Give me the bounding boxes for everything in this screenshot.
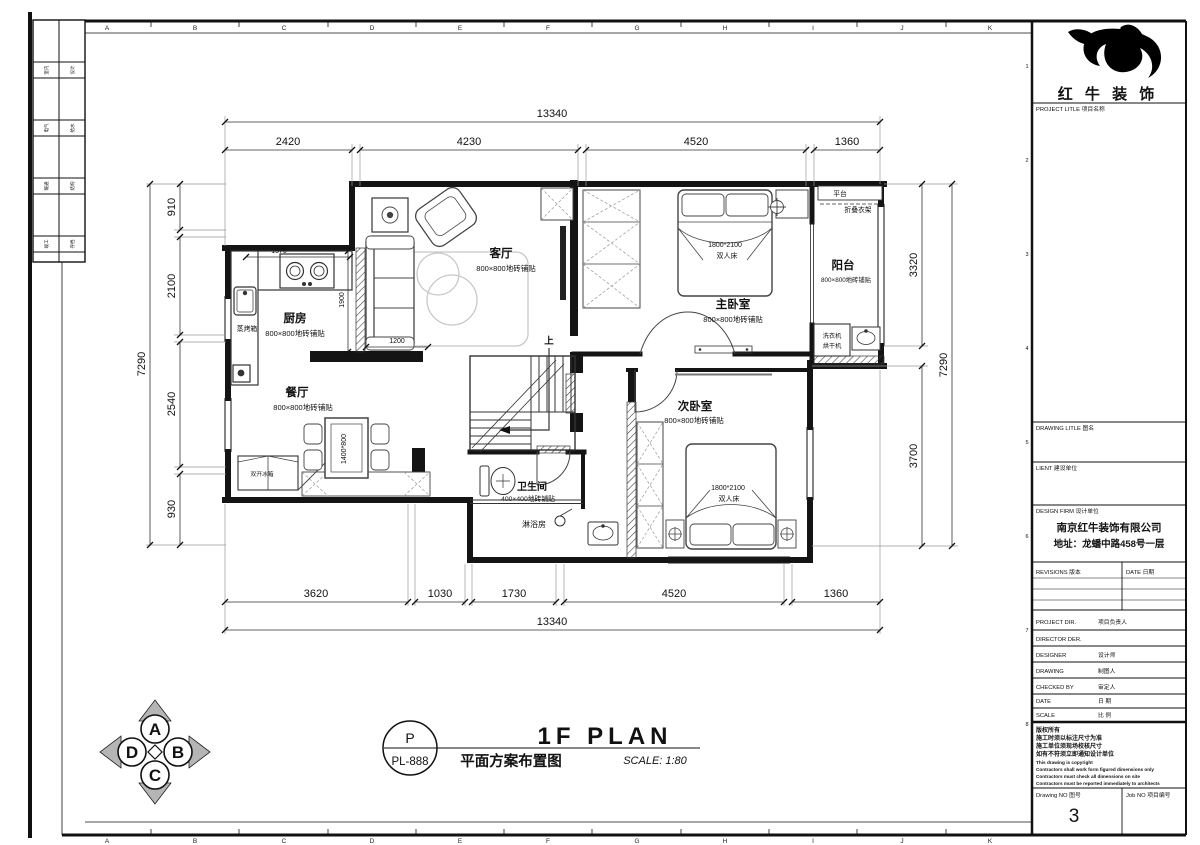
armchair	[412, 184, 480, 250]
grid-number: 2	[1025, 158, 1028, 164]
grid-number: 6	[1025, 534, 1028, 540]
row-label: CHECKED BY	[1036, 685, 1074, 691]
strip-cell: 电气	[43, 123, 49, 132]
platform-shelf	[818, 186, 882, 200]
row-label: DRAWING	[1036, 669, 1064, 675]
strip-cell: 暖通	[43, 181, 50, 190]
dryer-label: 烘干机	[823, 342, 842, 350]
drawing-no-label: Drawing NO 图号	[1036, 791, 1081, 799]
dim-left-3: 2540	[166, 392, 178, 416]
drawing-title-label: DRAWING LITLE 图名	[1036, 424, 1094, 432]
dim-sofa: 1200	[389, 338, 405, 345]
row-label: DESIGNER	[1036, 653, 1066, 659]
row-label: DIRECTOR DER.	[1036, 637, 1082, 643]
revisions-label: REVISIONS 版本	[1036, 568, 1081, 576]
room-dining-note: 800×800地砖铺贴	[273, 402, 333, 412]
room-balcony-note: 800×800地砖铺贴	[821, 275, 872, 284]
shower-label: 淋浴房	[522, 519, 546, 529]
row-label: 审定人	[1098, 683, 1116, 691]
dim-top-total: 13340	[537, 108, 568, 120]
strip-cell: 设计	[69, 65, 76, 74]
row-label: DATE	[1036, 699, 1051, 705]
strip-cell: 给水	[69, 123, 76, 132]
strip-cell: 室内	[43, 65, 50, 74]
grid-numbers-right: 1 2 3 4 5 6 7 8	[1025, 64, 1028, 728]
dim-top-1: 2420	[276, 136, 300, 148]
grid-letter: E	[458, 838, 463, 845]
sheet-frame	[28, 12, 1186, 838]
stairs	[470, 348, 575, 452]
grid-number: 3	[1025, 252, 1028, 258]
dim-bottom-1: 3620	[304, 588, 328, 600]
grid-letter: G	[634, 838, 639, 845]
tv	[560, 226, 566, 300]
design-firm-label: DESIGN FIRM 设计单位	[1036, 507, 1099, 515]
dim-right-total: 7290	[938, 353, 950, 377]
grid-letter: C	[282, 838, 287, 845]
strip-cell: 竣工	[43, 239, 50, 248]
copyright-line: 版权所有	[1035, 726, 1060, 734]
wardrobe-second	[637, 422, 663, 548]
grid-letter: I	[812, 25, 814, 32]
copyright-line: Contractors must check all dimensions on…	[1036, 774, 1140, 779]
copyright-line: Contractors shall work form figured dime…	[1036, 767, 1154, 772]
grid-letter: E	[458, 25, 463, 32]
title-block-rows: PROJECT DIR. 项目负责人 DIRECTOR DER. DESIGNE…	[1036, 618, 1127, 719]
row-label: PROJECT DIR.	[1036, 620, 1077, 626]
stairs-up-label: 上	[544, 335, 554, 347]
room-living: 客厅	[489, 246, 513, 260]
grid-letter: C	[282, 25, 287, 32]
dim-counter: 1570	[271, 248, 287, 255]
second-bed-size: 1800*2100	[711, 485, 745, 492]
grid-letters-top: A B C D E F G H I J K	[105, 25, 993, 32]
sofa	[366, 236, 414, 350]
row-label: 设计师	[1098, 651, 1116, 659]
second-bedroom-door	[635, 370, 677, 412]
grid-number: 1	[1025, 64, 1028, 70]
grid-letters-bottom: A B C D E F G H I J K	[105, 838, 993, 845]
drawing-titlebar: P PL-888 1F PLAN 平面方案布置图 SCALE: 1:80	[383, 721, 700, 775]
floor-plan: 上	[136, 108, 958, 634]
dim-left-2: 2100	[166, 274, 178, 298]
bathroom-door	[537, 452, 570, 485]
room-kitchen-note: 800×800地砖铺贴	[265, 328, 325, 338]
copyright-line: 施工时须以标注尺寸为准	[1036, 734, 1102, 742]
grid-letter: H	[723, 838, 728, 845]
washer-label: 洗衣机	[823, 332, 842, 340]
firm-address: 地址：龙蟠中路458号一层	[1054, 538, 1165, 550]
grid-letter: D	[370, 838, 375, 845]
grid-letter: A	[105, 25, 110, 32]
oven-label: 蒸烤箱	[237, 324, 258, 333]
room-living-note: 800×800地砖铺贴	[476, 263, 536, 273]
strip-cell: 结构	[69, 181, 76, 190]
grid-letter: B	[193, 25, 197, 32]
copyright-line: Contractors must be reported immediately…	[1036, 781, 1160, 786]
grid-letter: F	[546, 25, 550, 32]
room-second-note: 800×800地砖铺贴	[664, 415, 724, 425]
grid-letter: J	[900, 838, 903, 845]
revision-strip: 室内 设计 电气 给水 暖通 结构 竣工 存档	[33, 20, 85, 262]
dim-bottom-5: 1360	[824, 588, 848, 600]
copyright-line: 施工单位须现场校核尺寸	[1036, 742, 1102, 750]
plan-canvas: A B C D E F G H I J K A B C D E F G H I …	[0, 0, 1200, 845]
room-kitchen: 厨房	[284, 311, 307, 325]
grid-letter: I	[812, 838, 814, 845]
shower-head-icon	[555, 509, 572, 526]
room-master: 主卧室	[716, 297, 751, 311]
brand-name: 红 牛 装 饰	[1058, 85, 1159, 103]
compass: A B C D	[100, 700, 210, 804]
dim-bottom-4: 4520	[662, 588, 686, 600]
room-dining: 餐厅	[285, 385, 309, 399]
client-label: LIENT 建设单位	[1036, 464, 1077, 472]
grid-letter: G	[634, 25, 639, 32]
job-no-label: Job NO 项目编号	[1126, 791, 1171, 799]
grid-letter: B	[193, 838, 197, 845]
dim-left-4: 930	[166, 500, 178, 518]
row-label: 日 期	[1098, 698, 1111, 705]
room-bath: 卫生间	[517, 480, 547, 493]
fridge-label: 双开冰箱	[250, 470, 273, 478]
redbull-logo-icon	[1068, 25, 1161, 78]
project-title-label: PROJECT LITLE 项目名称	[1036, 105, 1105, 113]
title-en: 1F PLAN	[537, 723, 672, 750]
row-label: 制图人	[1098, 667, 1116, 675]
balcony-sink	[852, 327, 880, 350]
compass-e: B	[172, 743, 184, 762]
compass-s: C	[149, 766, 161, 785]
title-code-top: P	[405, 730, 414, 746]
title-block: 红 牛 装 饰 PROJECT LITLE 项目名称 DRAWING LITLE…	[1032, 25, 1186, 835]
dim-top-2: 4230	[457, 136, 481, 148]
dim-top-3: 4520	[684, 136, 708, 148]
title-code-bottom: PL-888	[391, 756, 428, 768]
grid-letter: K	[988, 25, 993, 32]
dim-right-1: 3320	[908, 253, 920, 277]
row-label: 比 例	[1098, 711, 1111, 719]
master-bed-size: 1800*2100	[708, 242, 742, 249]
title-scale: SCALE: 1:80	[623, 755, 687, 767]
wardrobe	[583, 190, 640, 308]
dim-left-total: 7290	[136, 352, 148, 376]
grid-letter: D	[370, 25, 375, 32]
room-second: 次卧室	[678, 399, 713, 413]
grid-number: 5	[1025, 440, 1028, 446]
date-col-label: DATE 日期	[1126, 569, 1154, 576]
grid-letter: F	[546, 838, 550, 845]
rack-label: 折叠衣架	[844, 205, 871, 214]
living-furniture	[366, 184, 566, 350]
washbasin	[588, 522, 618, 545]
washer-dryer	[814, 324, 850, 356]
dim-depth: 1900	[339, 292, 346, 308]
bathroom-fixtures	[470, 466, 618, 545]
dim-bottom-3: 1730	[502, 588, 526, 600]
strip-cell: 存档	[69, 239, 76, 248]
dim-left-1: 910	[166, 198, 178, 216]
grid-letter: H	[723, 25, 728, 32]
copyright-line: 如有不符须立即通知设计单位	[1036, 750, 1114, 758]
grid-number: 8	[1025, 722, 1028, 728]
grid-letter: J	[900, 25, 903, 32]
dim-top-4: 1360	[835, 136, 859, 148]
compass-n: A	[149, 720, 161, 739]
room-bath-note: 400×400地砖铺贴	[501, 494, 555, 503]
hall-cabinet	[541, 188, 573, 220]
platform-label: 平台	[833, 189, 847, 198]
toilet	[480, 466, 515, 496]
firm-name: 南京红牛装饰有限公司	[1057, 521, 1162, 534]
row-label: SCALE	[1036, 713, 1055, 719]
room-balcony: 阳台	[832, 258, 855, 272]
dim-bottom-2: 1030	[428, 588, 452, 600]
dim-table: 1400*800	[341, 434, 348, 464]
master-furniture	[541, 188, 808, 308]
grid-letter: K	[988, 838, 993, 845]
master-bed-type: 双人床	[717, 251, 738, 260]
dining-furniture	[238, 418, 430, 496]
dim-right-2: 3700	[908, 444, 920, 468]
row-label: 项目负责人	[1098, 618, 1127, 626]
compass-w: D	[126, 743, 138, 762]
copyright-block: 版权所有 施工时须以标注尺寸为准 施工单位须现场校核尺寸 如有不符须立即通知设计…	[1035, 726, 1160, 786]
dim-bottom-total: 13340	[537, 616, 568, 628]
drawing-number: 3	[1069, 806, 1080, 827]
second-bed-type: 双人床	[719, 494, 740, 503]
room-master-note: 800×800地砖铺贴	[703, 314, 763, 324]
grid-letter: A	[105, 838, 110, 845]
grid-number: 4	[1025, 346, 1028, 352]
grid-number: 7	[1025, 628, 1028, 634]
title-cn: 平面方案布置图	[460, 752, 562, 770]
copyright-line: This drawing is copyright	[1036, 760, 1093, 765]
drawing-sheet: A B C D E F G H I J K A B C D E F G H I …	[0, 0, 1200, 845]
